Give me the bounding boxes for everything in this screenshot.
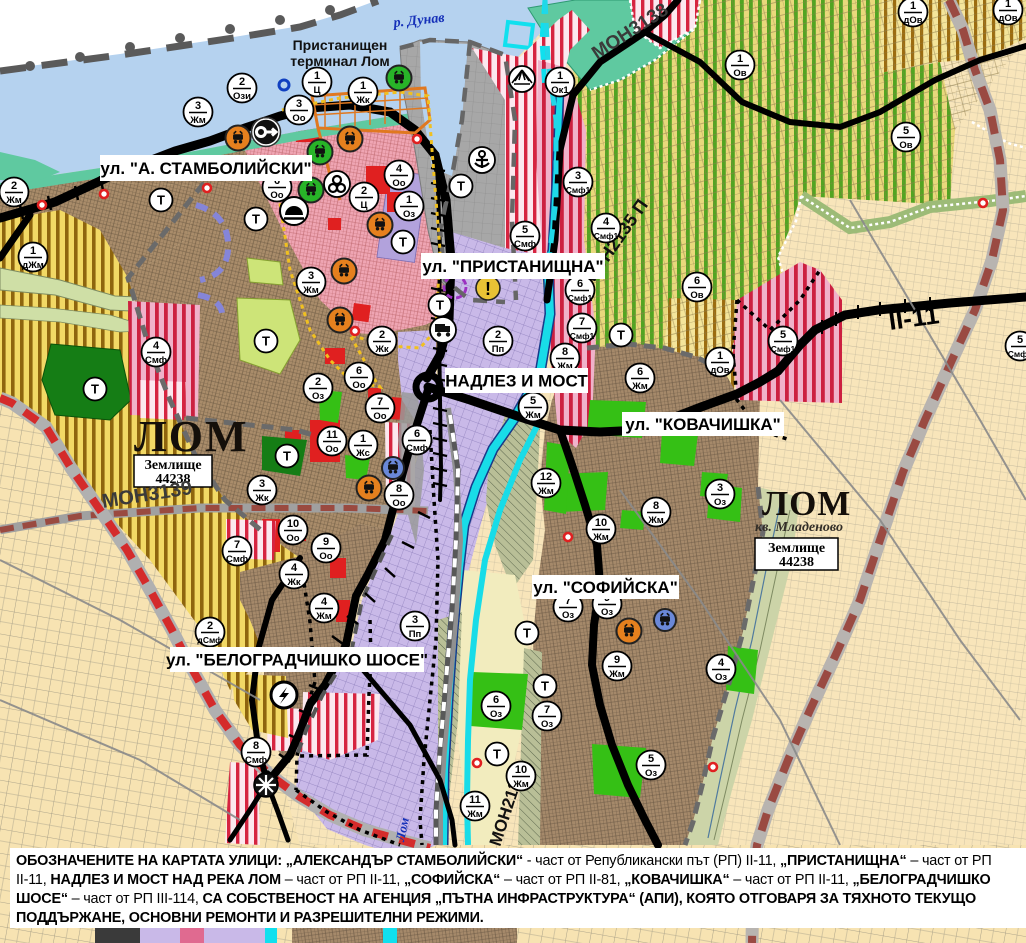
svg-text:дСмф: дСмф: [197, 635, 223, 645]
svg-text:Пп: Пп: [492, 344, 505, 355]
svg-text:3: 3: [717, 482, 723, 494]
svg-text:1: 1: [1005, 0, 1011, 10]
svg-text:7: 7: [377, 396, 383, 408]
svg-text:Оо: Оо: [325, 444, 338, 455]
svg-text:Жм: Жм: [647, 515, 664, 526]
svg-text:2: 2: [315, 376, 321, 388]
svg-text:44238: 44238: [779, 555, 814, 570]
svg-text:10: 10: [287, 518, 299, 530]
svg-text:2: 2: [11, 180, 17, 192]
svg-text:дОв: дОв: [710, 365, 729, 376]
svg-text:1: 1: [737, 53, 743, 65]
svg-text:Смф: Смф: [226, 554, 248, 565]
svg-text:ЛОМ: ЛОМ: [762, 484, 851, 523]
svg-text:Смф: Смф: [406, 443, 428, 454]
svg-text:ЛОМ: ЛОМ: [134, 412, 249, 461]
svg-text:4: 4: [718, 657, 725, 669]
svg-text:10: 10: [595, 517, 607, 529]
svg-text:Смф1: Смф1: [1008, 349, 1026, 359]
svg-text:Оо: Оо: [392, 498, 405, 509]
svg-text:2: 2: [239, 76, 245, 88]
svg-text:Жм: Жм: [315, 611, 332, 622]
svg-text:дЖм: дЖм: [22, 260, 44, 271]
svg-text:4: 4: [153, 340, 160, 352]
svg-text:6: 6: [356, 365, 362, 377]
svg-text:Т: Т: [157, 193, 165, 208]
svg-text:Ц: Ц: [361, 200, 368, 211]
svg-text:кв. Младеново: кв. Младеново: [755, 520, 843, 535]
svg-text:Жк: Жк: [286, 577, 301, 588]
svg-text:Оо: Оо: [373, 411, 386, 422]
svg-text:ул. "КОВАЧИШКА": ул. "КОВАЧИШКА": [625, 415, 781, 434]
svg-text:11: 11: [469, 794, 481, 806]
svg-text:Т: Т: [617, 328, 625, 343]
svg-text:4: 4: [321, 596, 328, 608]
svg-text:6: 6: [637, 366, 643, 378]
svg-text:3: 3: [259, 478, 265, 490]
svg-text:Смф1: Смф1: [594, 231, 619, 241]
svg-text:ул. "А. СТАМБОЛИЙСКИ": ул. "А. СТАМБОЛИЙСКИ": [100, 159, 311, 178]
svg-text:2: 2: [361, 185, 367, 197]
svg-text:1: 1: [557, 70, 563, 82]
svg-text:8: 8: [653, 500, 659, 512]
svg-text:Т: Т: [283, 449, 291, 464]
svg-text:1: 1: [360, 80, 366, 92]
svg-text:дОв: дОв: [998, 13, 1017, 24]
svg-text:Ози: Ози: [233, 91, 251, 102]
svg-text:Т: Т: [523, 626, 531, 641]
svg-text:5: 5: [1017, 334, 1023, 346]
svg-text:Т: Т: [252, 212, 260, 227]
svg-text:3: 3: [575, 170, 581, 182]
svg-text:Оо: Оо: [270, 190, 283, 201]
svg-text:Т: Т: [457, 179, 465, 194]
svg-text:Ов: Ов: [899, 140, 912, 151]
svg-text:Оо: Оо: [352, 380, 365, 391]
svg-text:Оз: Оз: [403, 209, 415, 220]
svg-text:2: 2: [207, 620, 213, 632]
svg-text:Смф1: Смф1: [568, 293, 593, 303]
svg-text:Оз: Оз: [312, 391, 324, 402]
svg-text:Оо: Оо: [392, 178, 405, 189]
svg-text:Пристанищен: Пристанищен: [293, 37, 388, 53]
svg-text:1: 1: [406, 194, 412, 206]
svg-text:Жс: Жс: [355, 448, 370, 459]
svg-text:6: 6: [694, 275, 700, 287]
svg-text:Оз: Оз: [601, 607, 613, 618]
svg-text:12: 12: [540, 471, 552, 483]
svg-text:Т: Т: [493, 747, 501, 762]
svg-text:дОв: дОв: [903, 15, 922, 26]
svg-text:Оо: Оо: [286, 533, 299, 544]
svg-text:1: 1: [717, 350, 723, 362]
svg-text:терминал Лом: терминал Лом: [290, 53, 390, 69]
svg-text:Ов: Ов: [690, 290, 703, 301]
svg-text:Жм: Жм: [537, 486, 554, 497]
svg-text:Ок1: Ок1: [551, 85, 569, 96]
svg-text:11: 11: [326, 429, 338, 441]
svg-text:Ц: Ц: [314, 85, 321, 96]
svg-text:5: 5: [903, 125, 909, 137]
svg-text:Смф1: Смф1: [771, 344, 796, 354]
svg-text:8: 8: [396, 483, 402, 495]
svg-text:ул. "СОФИЙСКА": ул. "СОФИЙСКА": [533, 578, 678, 597]
svg-text:4: 4: [603, 216, 610, 228]
svg-text:Жм: Жм: [466, 809, 483, 820]
svg-text:Т: Т: [262, 334, 270, 349]
svg-text:1: 1: [910, 0, 916, 12]
svg-text:Оз: Оз: [645, 768, 657, 779]
svg-text:3: 3: [296, 98, 302, 110]
svg-text:4: 4: [291, 562, 298, 574]
svg-text:9: 9: [323, 536, 329, 548]
svg-text:3: 3: [308, 270, 314, 282]
svg-text:Жк: Жк: [374, 344, 389, 355]
svg-text:Жм: Жм: [189, 115, 206, 126]
svg-text:Ов: Ов: [733, 68, 746, 79]
svg-text:Оз: Оз: [715, 672, 727, 683]
svg-text:Жм: Жм: [5, 195, 22, 206]
svg-text:Жк: Жк: [355, 95, 370, 106]
svg-text:Смф: Смф: [245, 755, 267, 766]
svg-text:Смф: Смф: [514, 239, 536, 250]
svg-text:ул. "ПРИСТАНИЩНА": ул. "ПРИСТАНИЩНА": [422, 257, 603, 276]
svg-text:Жм: Жм: [592, 532, 609, 543]
svg-text:Жк: Жк: [254, 493, 269, 504]
svg-text:6: 6: [577, 278, 583, 290]
svg-text:Т: Т: [541, 679, 549, 694]
svg-text:9: 9: [614, 654, 620, 666]
svg-text:1: 1: [30, 245, 36, 257]
svg-text:Жм: Жм: [524, 410, 541, 421]
svg-text:НАДЛЕЗ И МОСТ: НАДЛЕЗ И МОСТ: [445, 372, 588, 391]
svg-text:5: 5: [522, 224, 528, 236]
svg-text:5: 5: [780, 329, 786, 341]
svg-text:Жм: Жм: [608, 669, 625, 680]
svg-text:Т: Т: [436, 298, 444, 313]
svg-text:Смф: Смф: [145, 355, 167, 366]
svg-text:Жм: Жм: [631, 381, 648, 392]
svg-text:5: 5: [648, 753, 654, 765]
svg-text:1: 1: [360, 433, 366, 445]
svg-text:6: 6: [493, 694, 499, 706]
svg-text:Т: Т: [399, 235, 407, 250]
svg-text:Т: Т: [91, 382, 99, 397]
svg-text:Оо: Оо: [319, 551, 332, 562]
svg-text:Оз: Оз: [562, 610, 574, 621]
svg-text:Землище: Землище: [768, 541, 825, 556]
svg-text:Оо: Оо: [292, 113, 305, 124]
svg-text:8: 8: [562, 346, 568, 358]
svg-text:7: 7: [544, 704, 550, 716]
svg-text:1: 1: [314, 70, 320, 82]
svg-text:Оз: Оз: [541, 719, 553, 730]
svg-text:Жм: Жм: [302, 285, 319, 296]
svg-text:7: 7: [579, 316, 585, 328]
svg-text:6: 6: [414, 428, 420, 440]
svg-text:7: 7: [234, 539, 240, 551]
svg-text:3: 3: [195, 100, 201, 112]
svg-text:3: 3: [412, 614, 418, 626]
svg-text:Оз: Оз: [714, 497, 726, 508]
svg-text:Жм: Жм: [512, 779, 529, 790]
svg-text:2: 2: [379, 329, 385, 341]
svg-text:ул. "БЕЛОГРАДЧИШКО ШОСЕ": ул. "БЕЛОГРАДЧИШКО ШОСЕ": [166, 651, 428, 670]
svg-text:4: 4: [396, 163, 403, 175]
svg-text:Смф1: Смф1: [566, 185, 591, 195]
svg-text:Пп: Пп: [409, 629, 422, 640]
svg-text:Смф1: Смф1: [570, 331, 595, 341]
svg-text:8: 8: [253, 740, 259, 752]
svg-text:!: !: [485, 279, 491, 299]
svg-text:2: 2: [495, 329, 501, 341]
svg-text:Оз: Оз: [490, 709, 502, 720]
svg-text:10: 10: [515, 764, 527, 776]
svg-text:5: 5: [530, 395, 536, 407]
